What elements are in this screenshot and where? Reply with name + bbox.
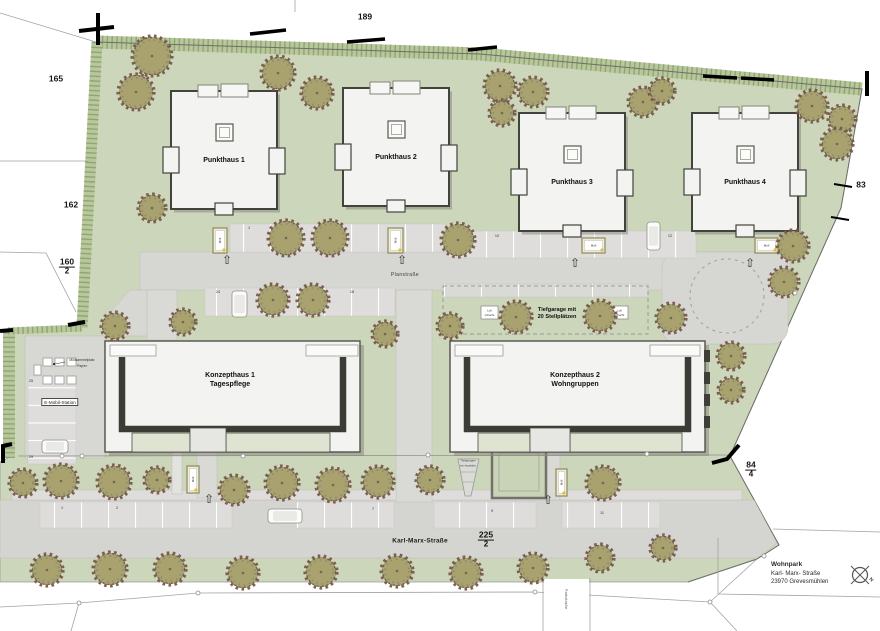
car	[268, 509, 302, 523]
waste-container	[43, 376, 52, 384]
compass-icon	[851, 566, 869, 584]
muell-shed: Müll	[755, 238, 778, 253]
site-plan: MüllMüllMüllMüllMüllMüllLuftschachtLufts…	[0, 0, 880, 631]
muell-shed: Müll	[556, 469, 567, 496]
building-punkthaus-3	[511, 106, 633, 237]
waste-container	[55, 358, 64, 366]
building-konzepthaus-2	[450, 341, 710, 456]
building-punkthaus-2	[335, 81, 457, 212]
svg-text:Luft: Luft	[617, 309, 622, 313]
muell-shed: Müll	[213, 228, 227, 253]
waste-container	[55, 376, 64, 384]
car	[232, 291, 247, 317]
car	[647, 222, 660, 250]
building-konzepthaus-1	[105, 341, 364, 456]
waste-container	[43, 358, 52, 366]
svg-text:schacht: schacht	[485, 313, 495, 317]
muell-shed: Müll	[388, 228, 403, 253]
svg-text:Luft: Luft	[487, 309, 492, 313]
site-plan-drawing: MüllMüllMüllMüllMüllMüllLuftschachtLufts…	[0, 0, 880, 631]
muell-label: Müll	[560, 479, 564, 485]
k1-entry-path	[197, 450, 217, 498]
muell-label: Müll	[591, 244, 597, 248]
muell-label: Müll	[764, 244, 770, 248]
muell-label: Müll	[191, 476, 195, 482]
waste-container	[67, 376, 76, 384]
muell-label: Müll	[394, 237, 398, 243]
car	[42, 440, 68, 453]
side-street-stub	[544, 579, 589, 631]
waste-container	[67, 358, 76, 366]
waste-container	[34, 365, 41, 375]
luftschacht: Luftschacht	[481, 306, 498, 319]
muell-shed: Müll	[582, 238, 605, 253]
muell-shed: Müll	[187, 466, 199, 493]
building-punkthaus-1	[163, 84, 285, 215]
muell-label: Müll	[218, 237, 222, 243]
building-punkthaus-4	[684, 106, 806, 237]
